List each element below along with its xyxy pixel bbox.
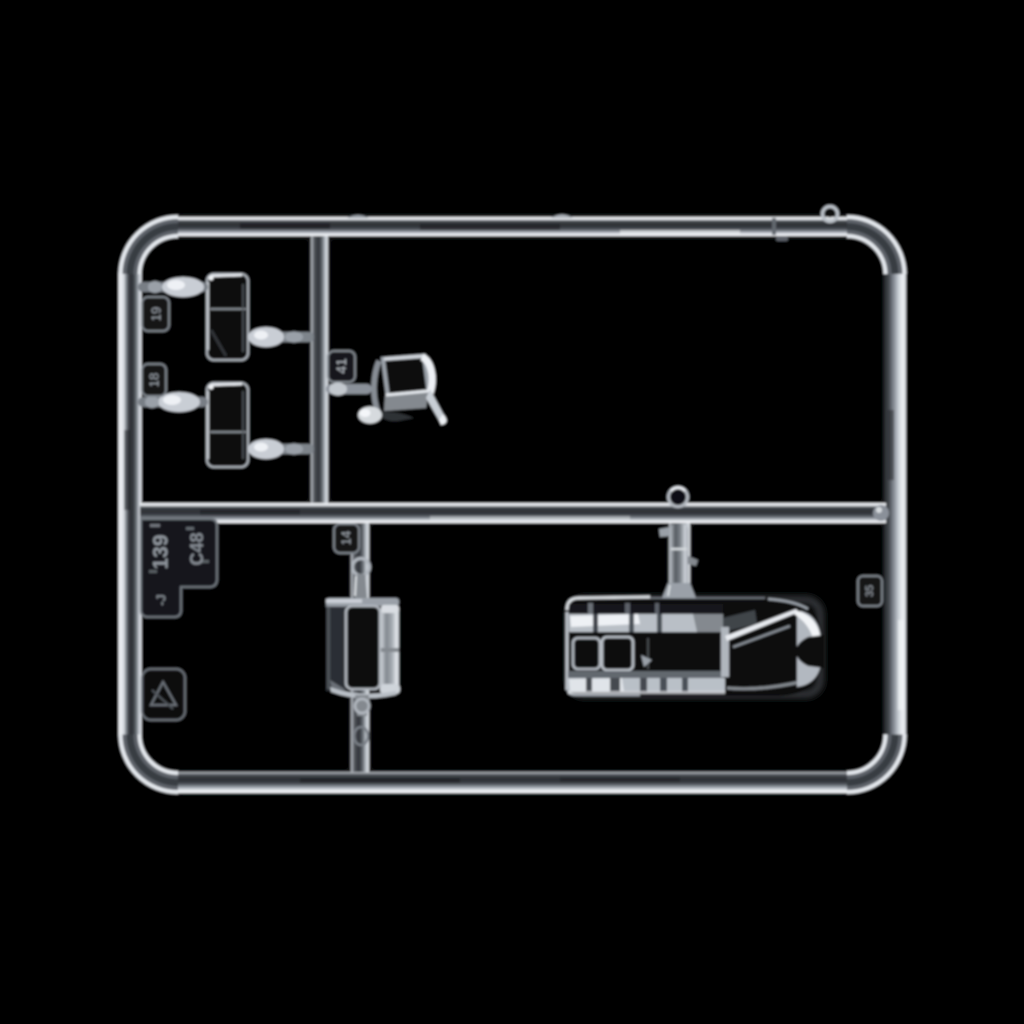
svg-text:41: 41 [333, 358, 349, 374]
svg-text:19: 19 [149, 307, 164, 321]
svg-text:139: 139 [150, 534, 173, 569]
svg-text:14: 14 [339, 531, 354, 545]
svg-text:-J: -J [154, 594, 169, 606]
svg-text:35: 35 [864, 585, 876, 597]
svg-text:18: 18 [147, 373, 162, 387]
